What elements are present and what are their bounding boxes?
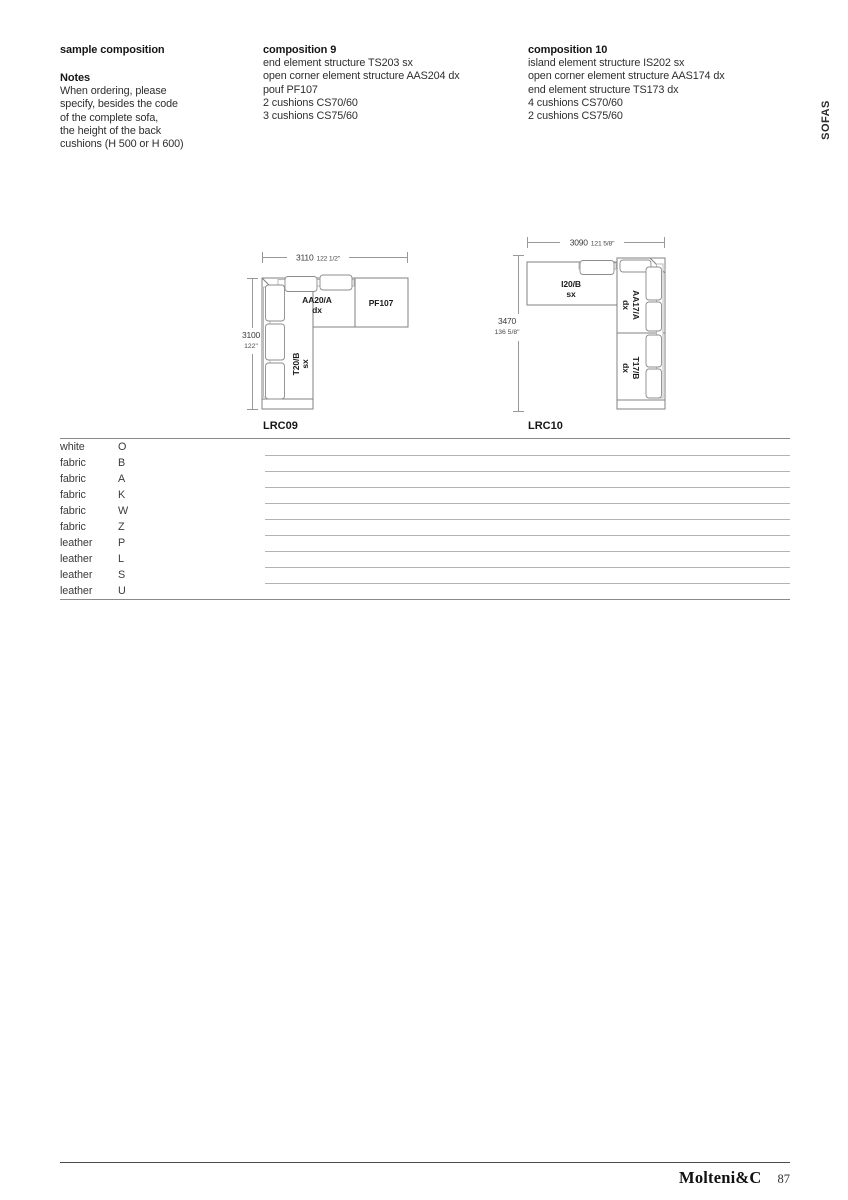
sample-composition-column: sample composition Notes When ordering, …: [60, 44, 255, 151]
table-row: fabric W: [60, 503, 790, 519]
material-label: fabric: [60, 457, 118, 469]
end-element-base: [617, 400, 665, 409]
table-row: fabric K: [60, 487, 790, 503]
table-row: fabric A: [60, 471, 790, 487]
composition-9-line: end element structure TS203 sx: [263, 57, 518, 70]
notes-title: Notes: [60, 72, 255, 85]
brand-logo: Molteni&C: [679, 1168, 761, 1188]
cushion: [646, 369, 662, 398]
lrc09-plan-diagram: 3110122 1/2" 3100 122": [235, 244, 420, 440]
footer-rule: [60, 1162, 790, 1163]
finish-code: B: [118, 457, 125, 469]
finish-code: O: [118, 441, 126, 453]
table-row: leather P: [60, 535, 790, 551]
finish-code: P: [118, 537, 125, 549]
material-label: fabric: [60, 473, 118, 485]
composition-10-line: end element structure TS173 dx: [528, 84, 783, 97]
composition-9-line: 3 cushions CS75/60: [263, 110, 518, 123]
cushion: [266, 363, 285, 399]
material-label: white: [60, 441, 118, 453]
finish-code: S: [118, 569, 125, 581]
notes-line: of the complete sofa,: [60, 112, 255, 125]
notes-line: When ordering, please: [60, 85, 255, 98]
lrc09-code-label: LRC09: [263, 420, 298, 432]
page-number: 87: [778, 1172, 791, 1187]
catalog-page: SOFAS sample composition Notes When orde…: [0, 0, 848, 1200]
table-row: fabric Z: [60, 519, 790, 535]
lrc09-end-element-side: sx: [300, 359, 310, 369]
finish-code: A: [118, 473, 125, 485]
table-row: white O: [60, 439, 790, 455]
lrc09-corner-element-side: dx: [312, 305, 322, 315]
finish-code: U: [118, 585, 126, 597]
composition-9-column: composition 9 end element structure TS20…: [263, 44, 518, 123]
composition-10-line: 2 cushions CS75/60: [528, 110, 783, 123]
material-label: fabric: [60, 521, 118, 533]
cushion: [580, 261, 614, 275]
composition-10-line: open corner element structure AAS174 dx: [528, 70, 783, 83]
finish-code: Z: [118, 521, 125, 533]
material-label: leather: [60, 537, 118, 549]
composition-10-title: composition 10: [528, 44, 783, 57]
lrc10-sofa-outline: [527, 258, 665, 409]
lrc10-island-element-label: I20/B: [561, 279, 581, 289]
finish-code: K: [118, 489, 125, 501]
cushion: [266, 285, 285, 321]
cushion: [646, 335, 662, 367]
composition-10-line: 4 cushions CS70/60: [528, 97, 783, 110]
notes-line: specify, besides the code: [60, 98, 255, 111]
cushion: [285, 277, 317, 292]
side-tab-sofas: SOFAS: [820, 100, 832, 140]
cushion: [646, 302, 662, 331]
table-row: leather U: [60, 583, 790, 599]
table-row: fabric B: [60, 455, 790, 471]
lrc10-height-label-mm: 3470: [498, 316, 517, 326]
finish-code: L: [118, 553, 124, 565]
cushion: [646, 267, 662, 300]
table-row: leather S: [60, 567, 790, 583]
lrc10-end-element-side: dx: [621, 363, 631, 373]
finish-price-table: white O fabric B fabric A fabric K fabri…: [60, 438, 790, 600]
lrc10-island-element-side: sx: [566, 289, 576, 299]
composition-9-line: 2 cushions CS70/60: [263, 97, 518, 110]
material-label: leather: [60, 585, 118, 597]
lrc09-height-label-mm: 3100: [242, 330, 261, 340]
composition-9-title: composition 9: [263, 44, 518, 57]
lrc10-code-label: LRC10: [528, 420, 563, 432]
lrc10-plan-diagram: 3090121 5/8" 3470 136 5/8": [492, 228, 682, 428]
cushion: [266, 324, 285, 360]
material-label: leather: [60, 569, 118, 581]
footer: Molteni&C 87: [679, 1168, 790, 1188]
table-row: leather L: [60, 551, 790, 567]
material-label: fabric: [60, 505, 118, 517]
finish-code: W: [118, 505, 128, 517]
composition-10-column: composition 10 island element structure …: [528, 44, 783, 123]
material-label: fabric: [60, 489, 118, 501]
end-element-base: [262, 399, 313, 409]
lrc09-height-label-in: 122": [244, 343, 258, 350]
composition-10-line: island element structure IS202 sx: [528, 57, 783, 70]
lrc10-height-label-in: 136 5/8": [494, 329, 520, 336]
composition-9-line: open corner element structure AAS204 dx: [263, 70, 518, 83]
composition-9-line: pouf PF107: [263, 84, 518, 97]
lrc09-corner-element-label: AA20/A: [302, 295, 332, 305]
notes-line: the height of the back: [60, 125, 255, 138]
lrc10-end-element-label: T17/B: [631, 357, 641, 380]
lrc09-pouf-label: PF107: [369, 298, 394, 308]
cushion: [320, 275, 352, 290]
notes-line: cushions (H 500 or H 600): [60, 138, 255, 151]
lrc10-corner-element-label: AA17/A: [631, 290, 641, 320]
lrc10-corner-element-side: dx: [621, 300, 631, 310]
sample-composition-title: sample composition: [60, 44, 255, 57]
material-label: leather: [60, 553, 118, 565]
